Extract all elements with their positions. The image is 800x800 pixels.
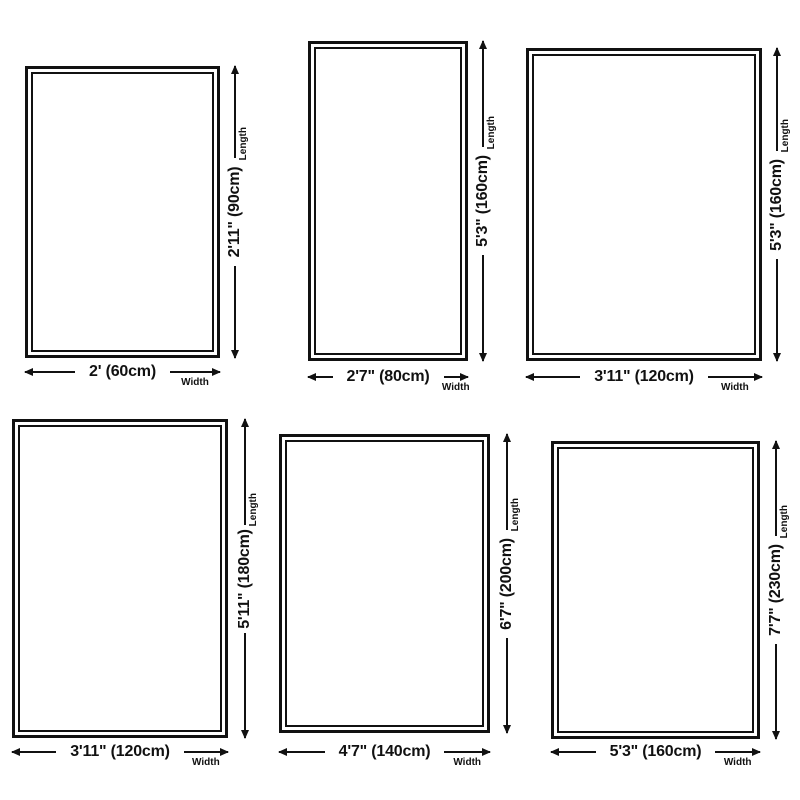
width-arrow-line-left xyxy=(526,376,580,378)
length-caption: Length xyxy=(510,498,521,531)
arrow-left-icon xyxy=(24,368,33,376)
rug-outline xyxy=(12,419,228,738)
width-arrow-line-left xyxy=(551,751,596,753)
arrow-up-icon xyxy=(241,418,249,427)
arrow-right-icon xyxy=(752,748,761,756)
arrow-left-icon xyxy=(525,373,534,381)
rug-outline-inner xyxy=(557,447,754,733)
width-dimension-label: 4'7" (140cm) xyxy=(339,743,431,761)
length-dimension-label: 7'7" (230cm) xyxy=(767,544,785,636)
width-arrow-line-right: Width xyxy=(708,376,762,378)
length-arrow: 7'7" (230cm) Length xyxy=(766,441,786,739)
rug-outline-inner xyxy=(18,425,222,732)
length-arrow-line-top xyxy=(244,419,246,525)
length-arrow-line-bottom xyxy=(775,644,777,739)
length-arrow: 5'11" (180cm) Length xyxy=(235,419,255,738)
length-arrow-line-bottom xyxy=(776,259,778,362)
length-arrow-line-top xyxy=(506,434,508,530)
arrow-down-icon xyxy=(773,353,781,362)
arrow-up-icon xyxy=(479,40,487,49)
width-arrow-line-right: Width xyxy=(715,751,760,753)
arrow-up-icon xyxy=(231,65,239,74)
width-arrow: 3'11" (120cm) Width xyxy=(526,369,762,385)
width-dimension-label: 5'3" (160cm) xyxy=(610,743,702,761)
rug-outline xyxy=(308,41,468,361)
width-dimension-label: 3'11" (120cm) xyxy=(70,743,170,761)
length-dimension-label: 5'3" (160cm) xyxy=(768,159,786,251)
arrow-right-icon xyxy=(482,748,491,756)
length-caption: Length xyxy=(248,493,259,526)
length-arrow-line-bottom xyxy=(506,638,508,734)
width-caption: Width xyxy=(724,757,752,768)
width-arrow-line-left xyxy=(25,371,75,373)
rug-outline xyxy=(25,66,220,358)
arrow-right-icon xyxy=(220,748,229,756)
width-caption: Width xyxy=(181,377,209,388)
width-dimension-label: 3'11" (120cm) xyxy=(594,368,694,386)
length-dimension-label: 5'3" (160cm) xyxy=(474,155,492,247)
width-arrow-line-right: Width xyxy=(444,751,490,753)
length-arrow-line-top xyxy=(776,48,778,151)
arrow-up-icon xyxy=(503,433,511,442)
length-arrow-line-bottom xyxy=(244,633,246,739)
length-arrow-line-bottom xyxy=(234,266,236,358)
arrow-down-icon xyxy=(479,353,487,362)
arrow-right-icon xyxy=(754,373,763,381)
length-caption: Length xyxy=(780,119,791,152)
rug-outline xyxy=(526,48,762,361)
width-arrow-line-right: Width xyxy=(444,376,469,378)
length-arrow-line-top xyxy=(775,441,777,536)
length-arrow: 5'3" (160cm) Length xyxy=(473,41,493,361)
length-arrow-line-bottom xyxy=(482,255,484,361)
rug-outline xyxy=(551,441,760,739)
length-arrow-line-top xyxy=(234,66,236,158)
width-arrow-line-right: Width xyxy=(184,751,228,753)
width-caption: Width xyxy=(453,757,481,768)
size-chart: 2'11" (90cm) Length 2' (60cm) Width 5'3"… xyxy=(0,0,800,800)
width-caption: Width xyxy=(192,757,220,768)
rug-outline-inner xyxy=(285,440,484,727)
arrow-up-icon xyxy=(772,440,780,449)
width-dimension-label: 2' (60cm) xyxy=(89,363,156,381)
width-caption: Width xyxy=(442,382,470,393)
width-arrow-line-left xyxy=(308,376,333,378)
length-arrow: 6'7" (200cm) Length xyxy=(497,434,517,733)
length-caption: Length xyxy=(779,505,790,538)
arrow-down-icon xyxy=(503,725,511,734)
length-dimension-label: 2'11" (90cm) xyxy=(226,167,244,258)
rug-outline xyxy=(279,434,490,733)
arrow-down-icon xyxy=(772,731,780,740)
arrow-left-icon xyxy=(11,748,20,756)
width-caption: Width xyxy=(721,382,749,393)
rug-outline-inner xyxy=(314,47,462,355)
length-arrow-line-top xyxy=(482,41,484,147)
rug-outline-inner xyxy=(31,72,214,352)
arrow-right-icon xyxy=(460,373,469,381)
width-arrow-line-left xyxy=(12,751,56,753)
arrow-left-icon xyxy=(550,748,559,756)
length-caption: Length xyxy=(486,116,497,149)
width-dimension-label: 2'7" (80cm) xyxy=(347,368,430,386)
width-arrow: 2' (60cm) Width xyxy=(25,364,220,380)
rug-outline-inner xyxy=(532,54,756,355)
width-arrow: 4'7" (140cm) Width xyxy=(279,744,490,760)
length-arrow: 2'11" (90cm) Length xyxy=(225,66,245,358)
width-arrow-line-right: Width xyxy=(170,371,220,373)
length-arrow: 5'3" (160cm) Length xyxy=(767,48,787,361)
length-dimension-label: 5'11" (180cm) xyxy=(236,529,254,629)
width-arrow: 2'7" (80cm) Width xyxy=(308,369,468,385)
arrow-left-icon xyxy=(307,373,316,381)
arrow-right-icon xyxy=(212,368,221,376)
width-arrow-line-left xyxy=(279,751,325,753)
arrow-up-icon xyxy=(773,47,781,56)
length-dimension-label: 6'7" (200cm) xyxy=(498,538,516,630)
width-arrow: 5'3" (160cm) Width xyxy=(551,744,760,760)
arrow-down-icon xyxy=(241,730,249,739)
length-caption: Length xyxy=(238,127,249,160)
width-arrow: 3'11" (120cm) Width xyxy=(12,744,228,760)
arrow-down-icon xyxy=(231,350,239,359)
arrow-left-icon xyxy=(278,748,287,756)
